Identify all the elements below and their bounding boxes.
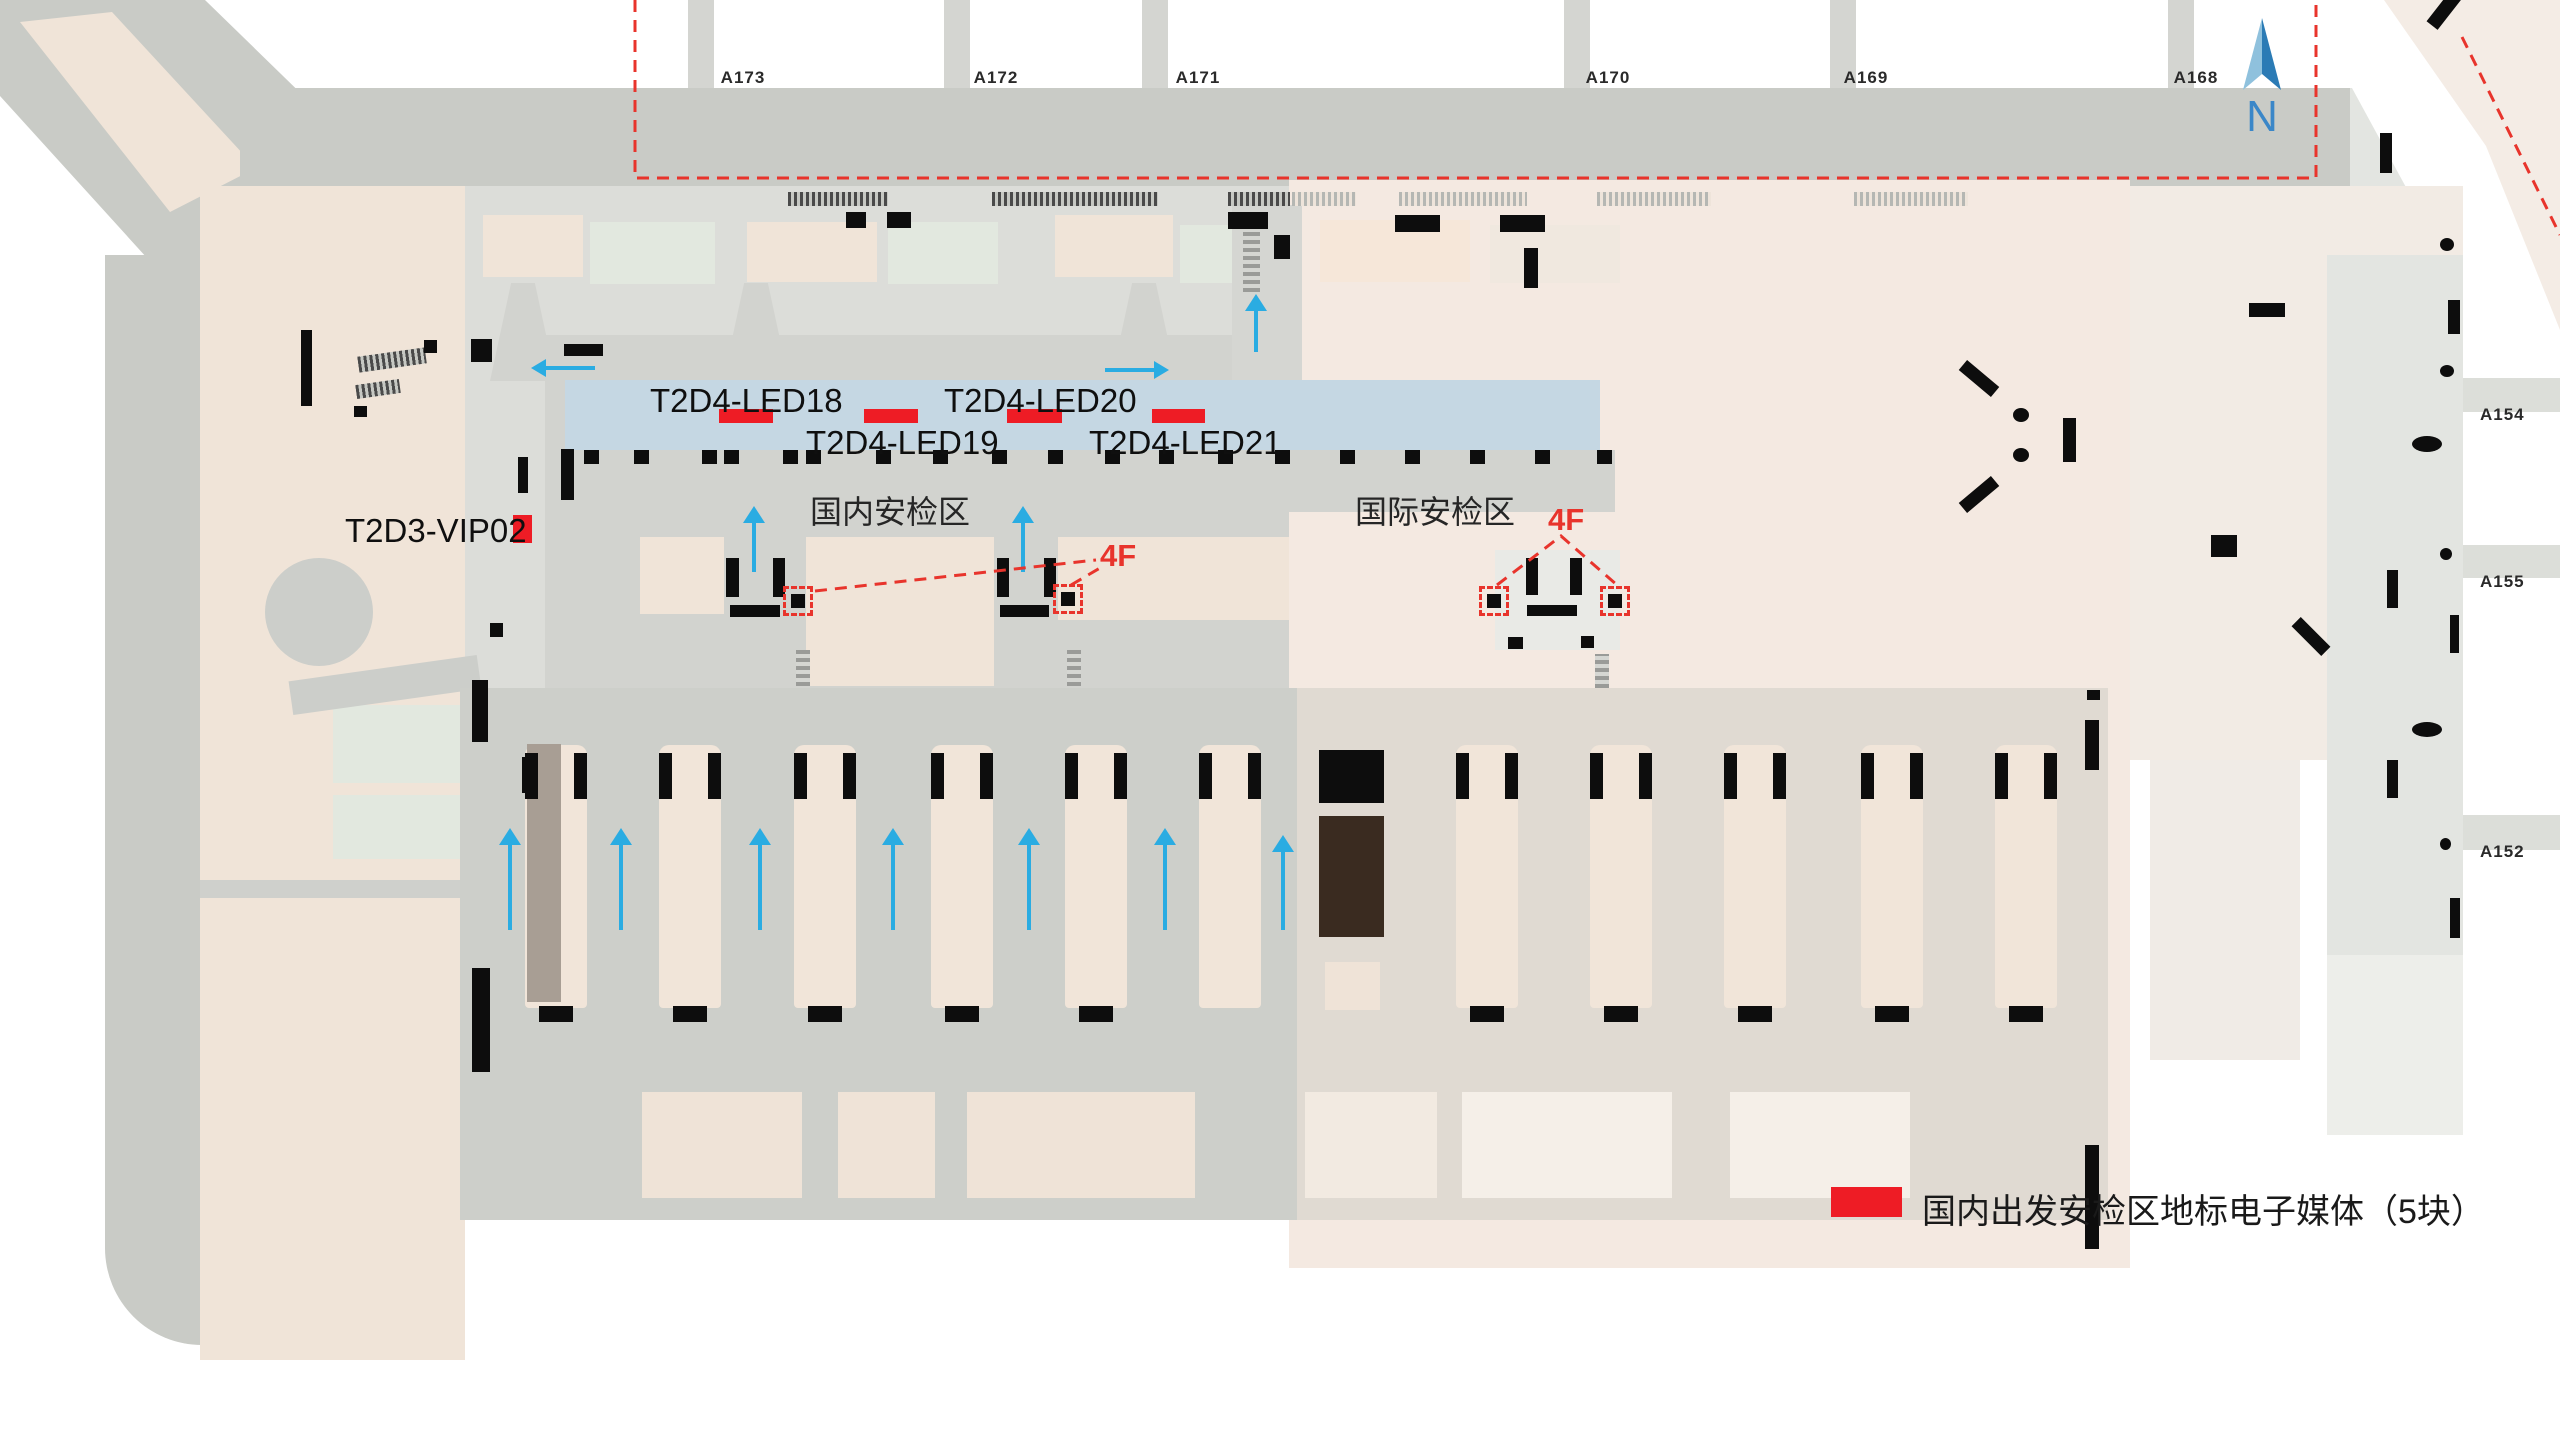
gate-label-a173: A173 xyxy=(705,68,781,88)
legend-text: 国内出发安检区地标电子媒体（5块） xyxy=(1922,1184,2485,1233)
legend-swatch xyxy=(1831,1187,1902,1217)
north-compass-icon xyxy=(2243,18,2281,90)
zone-label-international-security: 国际安检区 xyxy=(1351,487,1519,533)
gate-label-a172: A172 xyxy=(958,68,1034,88)
airport-terminal-map: A173 A172 A171 A170 A169 A168 A154 A155 … xyxy=(0,0,2560,1440)
floor-callout-domestic-4f: 4F xyxy=(1100,538,1136,574)
callout-line-domestic-long xyxy=(815,560,1096,591)
media-label-led20: T2D4-LED20 xyxy=(944,382,1126,420)
boundary-dashed-line xyxy=(635,0,2316,178)
gate-label-a155: A155 xyxy=(2480,572,2525,592)
gate-label-a168: A168 xyxy=(2158,68,2234,88)
callout-line-domestic-short xyxy=(1071,568,1100,585)
gate-label-a154: A154 xyxy=(2480,405,2525,425)
boundary-diagonal-dashed xyxy=(2462,37,2560,235)
gate-label-a170: A170 xyxy=(1570,68,1646,88)
callout-line-international xyxy=(1497,536,1617,585)
media-label-led21: T2D4-LED21 xyxy=(1089,424,1271,462)
north-label: N xyxy=(2238,92,2286,142)
gate-label-a171: A171 xyxy=(1160,68,1236,88)
zone-label-domestic-security: 国内安检区 xyxy=(806,487,974,533)
gate-label-a152: A152 xyxy=(2480,842,2525,862)
gate-label-a169: A169 xyxy=(1828,68,1904,88)
media-label-vip02: T2D3-VIP02 xyxy=(345,512,527,550)
media-label-led19: T2D4-LED19 xyxy=(806,424,988,462)
floor-callout-international-4f: 4F xyxy=(1548,502,1584,538)
media-label-led18: T2D4-LED18 xyxy=(650,382,832,420)
